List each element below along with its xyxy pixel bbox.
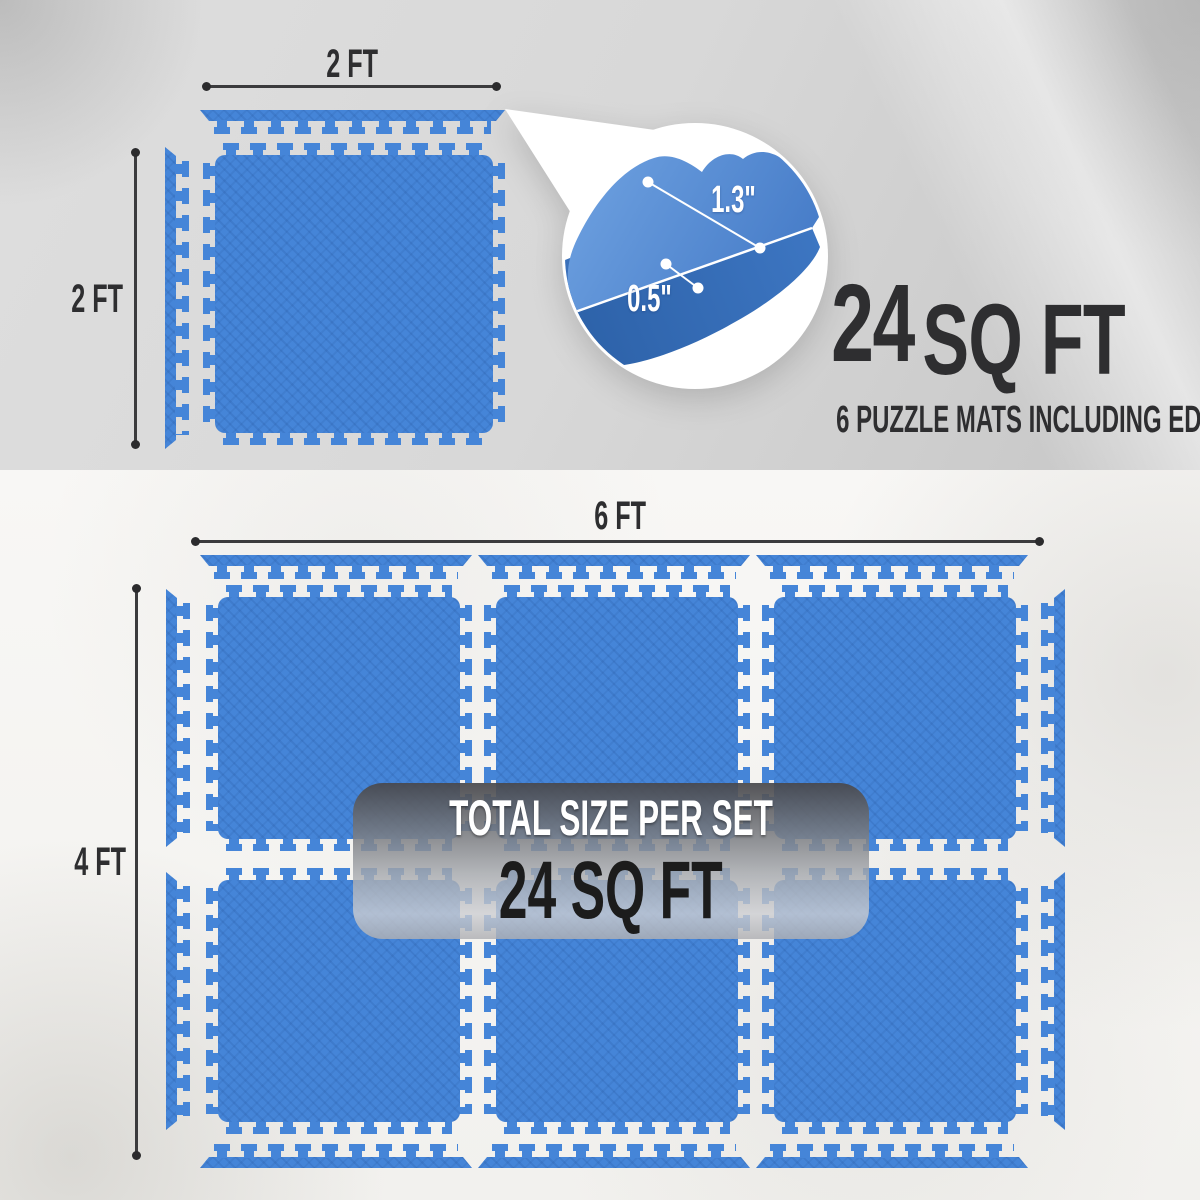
edge-strip-teeth — [770, 1144, 1014, 1158]
edge-strip-bar — [1054, 872, 1065, 1130]
edge-strip-left — [166, 589, 191, 847]
dimension-endpoint-dot — [202, 82, 211, 91]
edge-strip-top — [200, 110, 505, 135]
dimension-endpoint-dot — [131, 440, 140, 449]
edge-strip-top — [756, 555, 1028, 580]
set-height-label-text: 4 FT — [74, 842, 126, 882]
mat-teeth-right — [1014, 888, 1028, 1114]
coverage-note-text: 6 PUZZLE MATS INCLUDING EDGE PIECES — [836, 401, 1200, 439]
mat-teeth-right — [1014, 605, 1028, 831]
coverage-unit: SQ FT — [922, 290, 1125, 390]
dimension-endpoint-dot — [132, 584, 141, 593]
coverage-value: 24 — [831, 269, 914, 379]
edge-strip-left — [166, 872, 191, 1130]
edge-strip-top — [478, 555, 750, 580]
edge-strip-teeth — [1041, 603, 1055, 833]
mat-teeth-bottom — [782, 1120, 1008, 1134]
edge-strip-teeth — [214, 120, 491, 134]
edge-strip-teeth — [214, 565, 458, 579]
edge-strip-bottom — [478, 1143, 750, 1168]
coverage-note: 6 PUZZLE MATS INCLUDING EDGE PIECES — [691, 401, 1131, 439]
edge-strip-bar — [1054, 589, 1065, 847]
edge-strip-teeth — [1041, 886, 1055, 1116]
coverage-headline: 24 SQ FT — [866, 269, 1090, 390]
set-width-dimension-line — [196, 540, 1040, 543]
mat-thickness-label-text: 0.5" — [627, 280, 672, 318]
dimension-endpoint-dot — [191, 537, 200, 546]
edge-strip-right — [1040, 589, 1065, 847]
edge-strip-teeth — [492, 565, 736, 579]
total-size-badge: TOTAL SIZE PER SET 24 SQ FT — [353, 783, 869, 939]
mat-teeth-bottom — [504, 1120, 730, 1134]
single-mat-width-label-text: 2 FT — [326, 44, 378, 84]
thickness-closeup-inset — [490, 80, 860, 410]
single-mat-panel: 2 FT 2 FT — [0, 0, 1200, 470]
edge-strip-top — [200, 555, 472, 580]
edge-strip-bar — [478, 1157, 750, 1168]
mat-teeth-bottom — [226, 1120, 452, 1134]
single-mat-height-label: 2 FT — [7, 279, 187, 319]
dimension-endpoint-dot — [132, 1151, 141, 1160]
badge-value: 24 SQ FT — [433, 850, 788, 932]
edge-strip-teeth — [770, 565, 1014, 579]
set-width-label-text: 6 FT — [594, 496, 646, 536]
full-set-panel: 6 FT 4 FT — [0, 470, 1200, 1200]
single-mat-height-dimension-line — [134, 152, 137, 444]
set-height-label: 4 FT — [10, 842, 190, 882]
mat-thickness-label: 0.5" — [599, 280, 699, 318]
set-height-dimension-line — [135, 588, 138, 1155]
badge-title-text: TOTAL SIZE PER SET — [449, 793, 773, 843]
interlock-depth-label-text: 1.3" — [711, 181, 756, 219]
edge-strip-left — [165, 147, 190, 449]
interlock-depth-label: 1.3" — [683, 181, 783, 219]
badge-title: TOTAL SIZE PER SET — [354, 793, 868, 843]
edge-strip-bar — [200, 1157, 472, 1168]
set-width-label: 6 FT — [530, 496, 710, 536]
edge-strip-teeth — [176, 886, 190, 1116]
edge-strip-right — [1040, 872, 1065, 1130]
single-mat-tile — [203, 143, 505, 445]
edge-strip-teeth — [175, 161, 189, 435]
single-mat-height-label-text: 2 FT — [71, 279, 123, 319]
badge-value-text: 24 SQ FT — [499, 850, 723, 932]
edge-strip-teeth — [176, 603, 190, 833]
single-mat-width-label: 2 FT — [262, 44, 442, 84]
edge-strip-bar — [756, 1157, 1028, 1168]
mat-textured-surface — [215, 155, 493, 433]
edge-strip-teeth — [492, 1144, 736, 1158]
mat-teeth-bottom — [223, 431, 485, 445]
dimension-endpoint-dot — [1035, 537, 1044, 546]
edge-strip-bottom — [756, 1143, 1028, 1168]
single-mat-width-dimension-line — [207, 85, 497, 88]
edge-strip-bottom — [200, 1143, 472, 1168]
edge-strip-teeth — [214, 1144, 458, 1158]
dimension-endpoint-dot — [131, 148, 140, 157]
